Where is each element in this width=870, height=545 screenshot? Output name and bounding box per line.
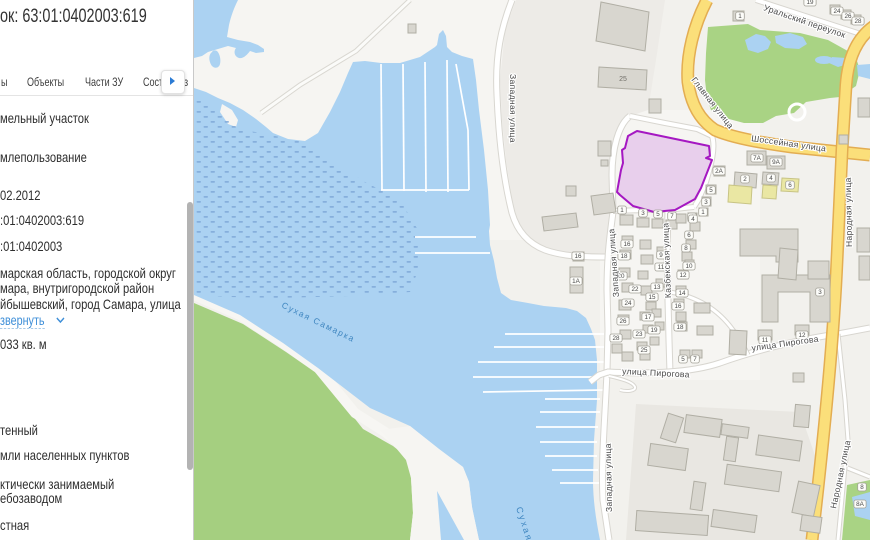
svg-text:3: 3: [818, 289, 822, 296]
svg-text:25: 25: [619, 76, 627, 83]
svg-text:1А: 1А: [572, 278, 581, 285]
svg-text:16: 16: [623, 241, 631, 248]
svg-text:3: 3: [641, 210, 645, 217]
svg-text:9А: 9А: [772, 159, 781, 166]
svg-text:6: 6: [788, 182, 792, 189]
svg-text:5: 5: [681, 356, 685, 363]
svg-text:4: 4: [691, 216, 695, 223]
svg-text:1: 1: [701, 209, 705, 216]
svg-text:5: 5: [656, 211, 660, 218]
svg-text:19: 19: [650, 327, 658, 334]
svg-text:6: 6: [687, 232, 691, 239]
svg-text:7: 7: [670, 213, 674, 220]
svg-text:Народная улица: Народная улица: [843, 177, 854, 247]
svg-text:4: 4: [769, 175, 773, 182]
svg-text:28: 28: [854, 18, 862, 25]
svg-text:24: 24: [624, 300, 632, 307]
svg-text:2: 2: [743, 176, 747, 183]
svg-text:3: 3: [704, 199, 708, 206]
svg-text:13: 13: [653, 284, 661, 291]
svg-text:24: 24: [833, 8, 841, 15]
svg-text:19: 19: [806, 0, 814, 6]
svg-text:18: 18: [620, 253, 628, 260]
svg-text:14: 14: [678, 290, 686, 297]
svg-text:Западная улица: Западная улица: [508, 74, 518, 143]
svg-text:17: 17: [644, 314, 652, 321]
svg-text:7А: 7А: [753, 155, 762, 162]
svg-text:8А: 8А: [856, 501, 865, 508]
svg-text:5: 5: [709, 187, 713, 194]
svg-text:12: 12: [679, 272, 687, 279]
svg-text:7: 7: [693, 356, 697, 363]
svg-text:23: 23: [635, 331, 643, 338]
svg-text:25: 25: [640, 347, 648, 354]
svg-text:1: 1: [738, 13, 742, 20]
svg-text:18: 18: [676, 324, 684, 331]
svg-text:28: 28: [612, 335, 620, 342]
svg-text:26: 26: [619, 318, 627, 325]
svg-text:8: 8: [684, 245, 688, 252]
svg-text:10: 10: [685, 263, 693, 270]
svg-text:1: 1: [620, 207, 624, 214]
svg-text:16: 16: [674, 303, 682, 310]
svg-text:2А: 2А: [715, 168, 724, 175]
svg-text:8: 8: [860, 484, 864, 491]
svg-text:26: 26: [844, 13, 852, 20]
svg-text:16: 16: [574, 253, 582, 260]
svg-text:15: 15: [648, 294, 656, 301]
svg-text:Западная улица: Западная улица: [603, 443, 614, 512]
svg-text:22: 22: [631, 286, 639, 293]
